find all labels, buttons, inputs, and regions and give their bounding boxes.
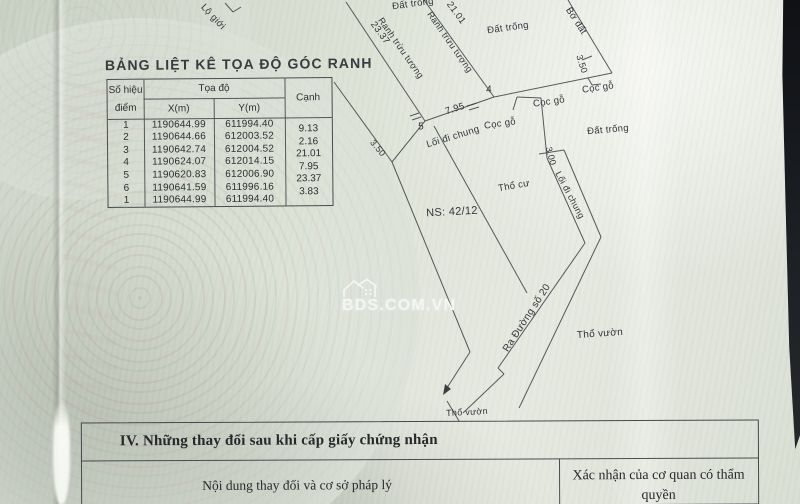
edge-value: 2.16 <box>285 136 332 149</box>
point-no: 4 <box>108 157 144 168</box>
table-row: 2 1190644.66 612003.52 <box>108 130 285 144</box>
y-value: 611994.40 <box>214 118 285 130</box>
table-row: 3 1190642.74 612004.52 <box>108 143 285 157</box>
table-row: 5 1190620.83 612006.90 <box>108 168 285 182</box>
y-value: 612014.15 <box>214 156 285 168</box>
coordinate-rows: 1 1190644.99 611994.40 2 1190644.66 6120… <box>108 117 286 206</box>
y-value: 612003.52 <box>214 131 285 143</box>
point-no: 6 <box>108 182 144 193</box>
x-value: 1190644.99 <box>144 119 214 131</box>
col-header-point-no-line2: điểm <box>108 103 144 114</box>
x-value: 1190644.66 <box>144 131 214 143</box>
col-header-coords: Tọa độ <box>143 82 284 94</box>
column-header-authority: Xác nhận của cơ quan có thẩm quyền <box>559 466 758 504</box>
coordinate-table-title: BẢNG LIỆT KÊ TỌA ĐỘ GÓC RANH <box>105 55 373 73</box>
x-value: 1190624.07 <box>144 156 214 168</box>
point-no: 3 <box>108 145 144 156</box>
column-header-content: Nội dung thay đổi và cơ sở pháp lý <box>202 477 392 494</box>
point-no: 2 <box>108 132 144 143</box>
house-icon <box>341 277 381 299</box>
scanned-land-certificate-page: Đất trống Lộ giới 23.37 Ranh trừu tượng … <box>0 0 800 504</box>
section-iv-changes: IV. Những thay đổi sau khi cấp giấy chứn… <box>81 420 759 504</box>
table-row: 4 1190624.07 612014.15 <box>108 155 285 169</box>
col-header-y: Y(m) <box>214 102 285 114</box>
coordinate-table: Số hiệu điểm Tọa độ X(m) Y(m) Cạnh 1 119… <box>106 77 333 208</box>
edge-value: 3.83 <box>285 186 332 199</box>
label-point-5: 5 <box>418 122 424 133</box>
edge-value: 9.13 <box>285 123 332 136</box>
point-no: 1 <box>108 119 144 130</box>
y-value: 611996.16 <box>214 181 285 193</box>
point-no: 5 <box>108 170 144 181</box>
col-header-edge: Cạnh <box>285 92 332 103</box>
table-row: 1 1190644.99 611994.40 <box>108 117 285 131</box>
col-header-point-no-line1: Số hiệu <box>107 85 143 96</box>
x-value: 1190641.59 <box>144 182 214 194</box>
x-value: 1190644.99 <box>144 194 214 206</box>
x-value: 1190620.83 <box>144 169 214 181</box>
table-row: 1 1190644.99 611994.40 <box>108 193 285 207</box>
label-point-4: 4 <box>486 85 492 96</box>
watermark-text: BDS.COM.VN <box>342 297 456 315</box>
y-value: 612006.90 <box>214 168 285 180</box>
point-no: 1 <box>108 195 144 206</box>
col-header-x: X(m) <box>144 103 214 115</box>
x-value: 1190642.74 <box>144 144 214 156</box>
y-value: 612004.52 <box>214 143 285 155</box>
path-direction-arrow <box>443 384 451 395</box>
table-row: 6 1190641.59 611996.16 <box>108 180 285 194</box>
edge-lengths: 9.13 2.16 21.01 7.95 23.37 3.83 <box>285 123 333 199</box>
edge-value: 23.37 <box>285 173 332 186</box>
y-value: 611994.40 <box>214 193 285 205</box>
section-iv-title: IV. Những thay đổi sau khi cấp giấy chứn… <box>120 432 438 450</box>
edge-value: 21.01 <box>285 148 332 161</box>
section-divider <box>82 458 758 462</box>
edge-value: 7.95 <box>285 161 332 174</box>
